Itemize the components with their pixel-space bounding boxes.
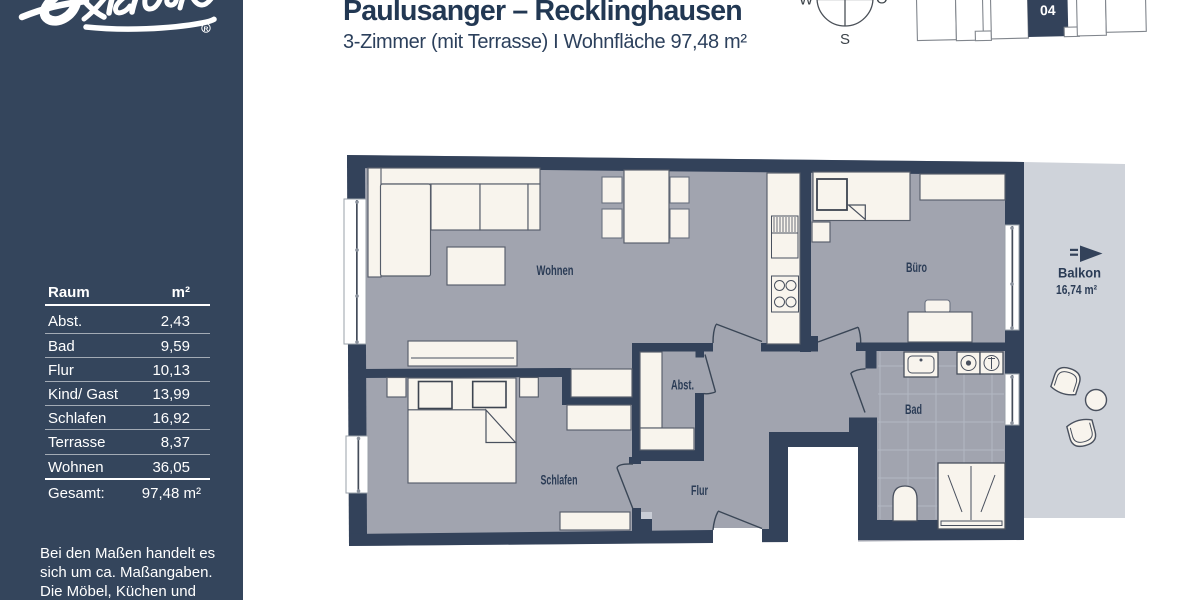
svg-text:Wohnen: Wohnen xyxy=(537,263,574,278)
svg-text:S: S xyxy=(840,31,850,48)
svg-text:16,74 m²: 16,74 m² xyxy=(1056,282,1098,297)
svg-text:Balkon: Balkon xyxy=(1058,266,1101,281)
svg-text:Bad: Bad xyxy=(905,402,922,417)
svg-text:W: W xyxy=(799,0,814,9)
svg-text:O: O xyxy=(876,0,888,8)
svg-text:04: 04 xyxy=(1040,2,1056,18)
svg-text:Flur: Flur xyxy=(691,483,708,498)
svg-text:Büro: Büro xyxy=(906,260,927,275)
svg-text:Schlafen: Schlafen xyxy=(541,473,578,488)
svg-text:Abst.: Abst. xyxy=(671,378,694,393)
